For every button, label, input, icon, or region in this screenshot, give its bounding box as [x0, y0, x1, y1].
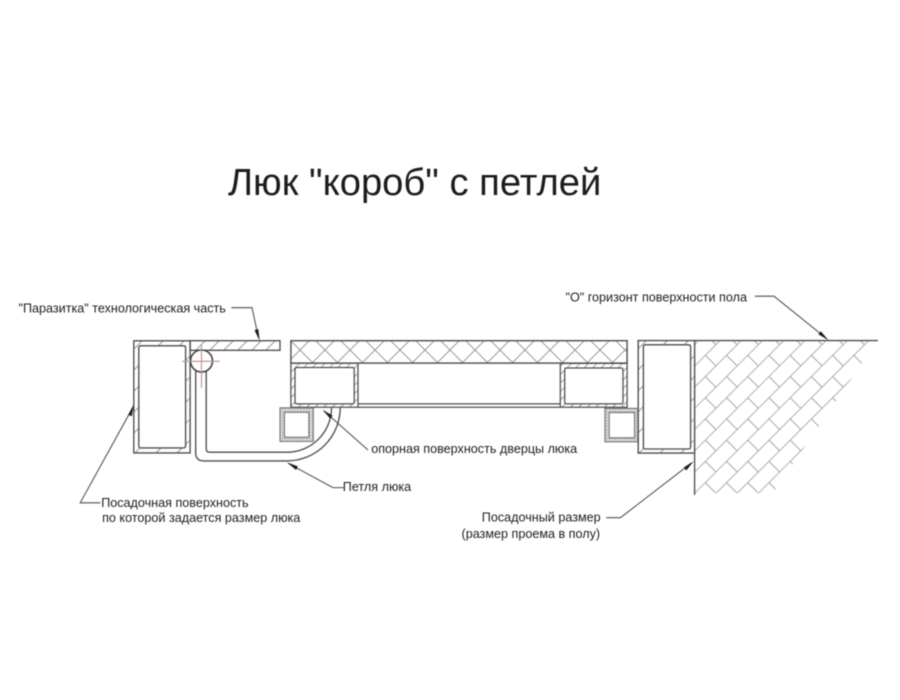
svg-text:Посадочный размер: Посадочный размер: [482, 510, 601, 524]
svg-text:Посадочная поверхность: Посадочная поверхность: [101, 496, 249, 510]
svg-text:Петля люка: Петля люка: [343, 480, 411, 494]
svg-text:"О" горизонт поверхности пола: "О" горизонт поверхности пола: [566, 291, 747, 305]
svg-text:опорная поверхность дверцы люк: опорная поверхность дверцы люка: [371, 442, 577, 456]
svg-text:"Паразитка" технологическая ча: "Паразитка" технологическая часть: [19, 302, 227, 316]
svg-text:Люк "короб" с петлей: Люк "короб" с петлей: [228, 161, 601, 204]
svg-text:по которой задается размер люк: по которой задается размер люка: [102, 511, 300, 525]
svg-text:(размер проема в полу): (размер проема в полу): [462, 527, 601, 541]
